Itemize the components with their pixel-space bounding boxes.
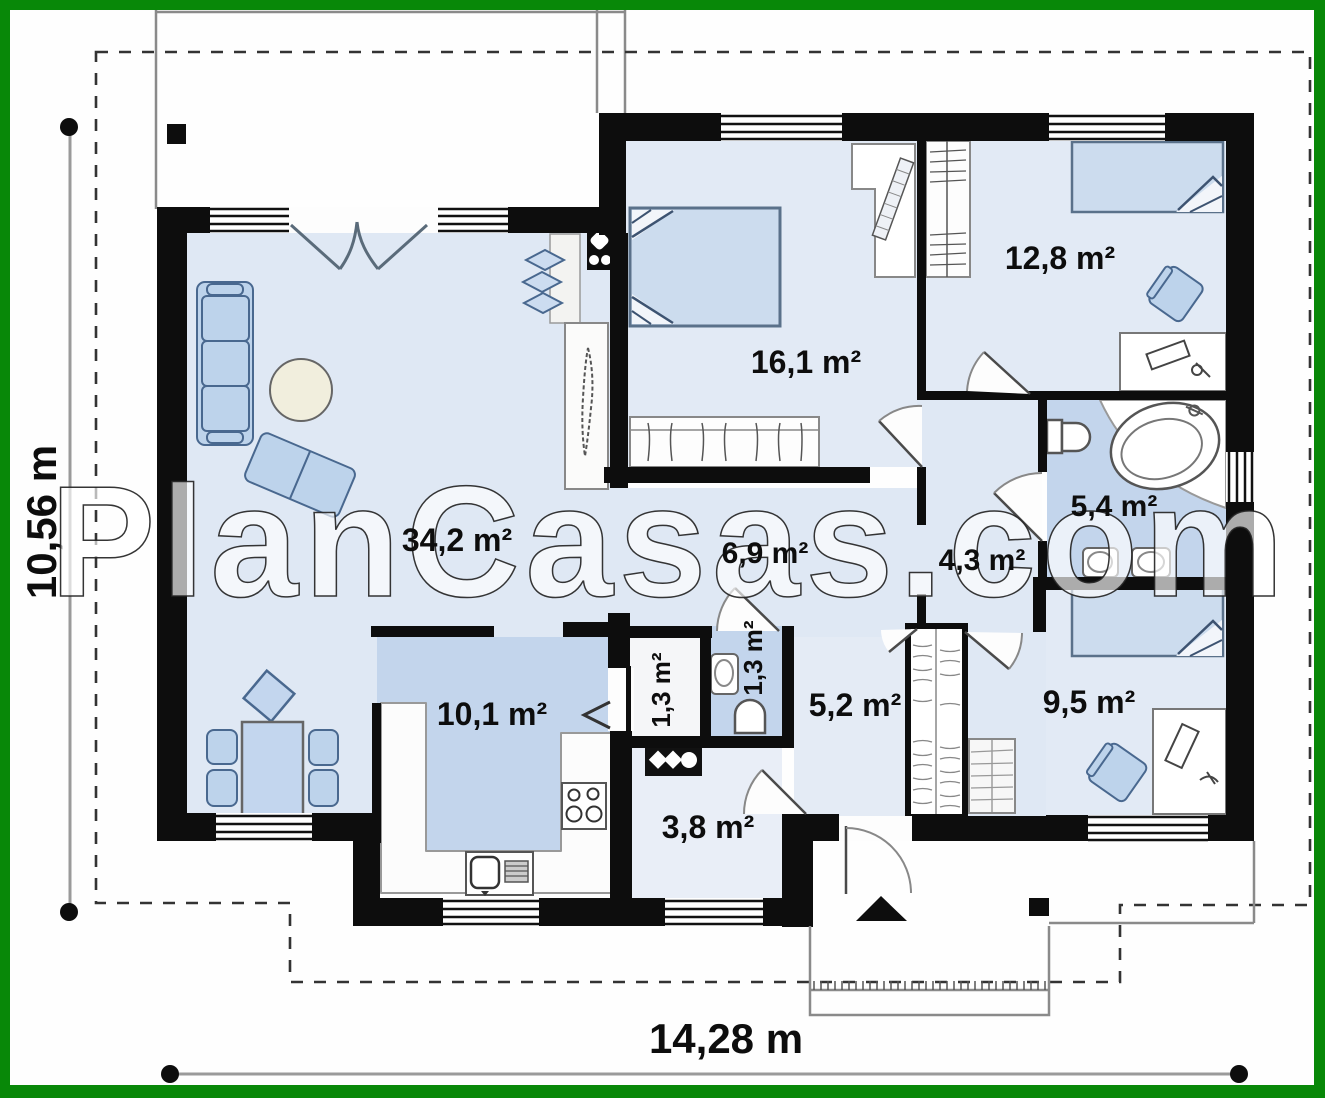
svg-text:16,1 m²: 16,1 m² xyxy=(751,344,861,380)
svg-text:9,5 m²: 9,5 m² xyxy=(1043,684,1135,720)
svg-text:3,8 m²: 3,8 m² xyxy=(662,809,754,845)
svg-text:6,9 m²: 6,9 m² xyxy=(722,537,809,570)
svg-text:5,4 m²: 5,4 m² xyxy=(1071,490,1158,523)
svg-text:1,3 m²: 1,3 m² xyxy=(646,652,676,727)
svg-text:12,8 m²: 12,8 m² xyxy=(1005,240,1115,276)
svg-text:PlanCasas.com: PlanCasas.com xyxy=(50,454,1290,630)
svg-text:14,28 m: 14,28 m xyxy=(649,1015,803,1062)
svg-text:1,3 m²: 1,3 m² xyxy=(738,620,768,695)
svg-text:34,2 m²: 34,2 m² xyxy=(402,522,512,558)
svg-text:4,3 m²: 4,3 m² xyxy=(939,544,1026,577)
svg-text:5,2 m²: 5,2 m² xyxy=(809,687,901,723)
svg-text:10,1 m²: 10,1 m² xyxy=(437,696,547,732)
